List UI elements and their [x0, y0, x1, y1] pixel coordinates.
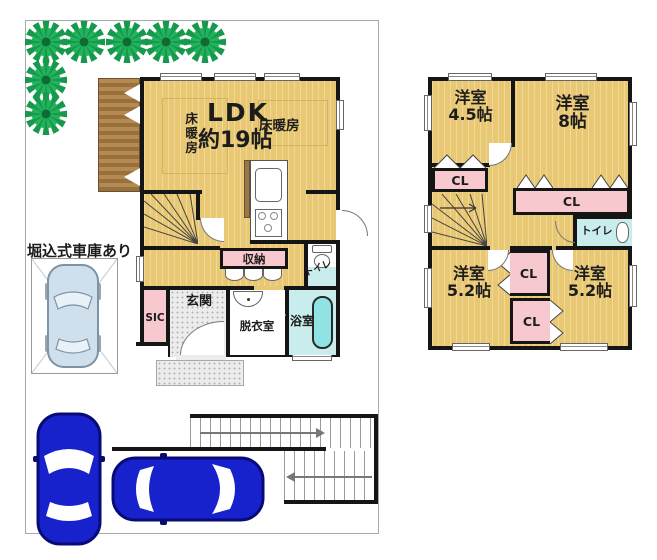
washbasin-faucet [247, 298, 250, 301]
bedroom-52r-label: 洋室 5.2帖 [548, 266, 632, 300]
closet-mid: CL [510, 250, 550, 296]
room-size: 4.5帖 [448, 105, 492, 124]
closet-label: CL [520, 266, 537, 281]
deck-notch [124, 106, 140, 124]
room-size: 5.2帖 [568, 281, 612, 300]
bathtub [312, 296, 333, 349]
bifold-door [550, 300, 564, 344]
kitchen-sink [255, 168, 282, 202]
ramp-arrow-left [294, 476, 372, 478]
building-notch [136, 342, 168, 361]
window [448, 73, 492, 81]
bathroom-label: 浴室 [290, 315, 314, 328]
window [424, 205, 432, 233]
entrance-porch [156, 360, 244, 386]
ramp-edge-bottom [284, 500, 378, 504]
tree-icon [105, 20, 149, 64]
room-size: 8帖 [558, 112, 587, 132]
bifold-door [517, 174, 553, 188]
window [560, 343, 608, 351]
floor-heating-label-left: 床暖房 [184, 112, 197, 156]
wall [306, 190, 340, 194]
tree-icon [144, 20, 188, 64]
toilet-tank [312, 245, 332, 253]
closet-tl: CL [432, 168, 488, 192]
staircase-2f [432, 194, 487, 246]
entrance-label: 玄関 [176, 295, 222, 309]
parked-car-lightblue [44, 263, 102, 369]
bifold-door [592, 174, 628, 188]
window [336, 100, 344, 130]
stove-burner [258, 212, 266, 220]
closet-label: CL [563, 194, 580, 209]
storage-label: 収納 [243, 251, 266, 267]
closet-label: CL [451, 173, 468, 188]
ramp-arrow-left-head [286, 472, 295, 482]
stove-burner [270, 212, 278, 220]
room-size: 5.2帖 [447, 281, 491, 300]
closet-label: CL [523, 314, 540, 329]
bedroom-8-label: 洋室 8帖 [515, 96, 630, 132]
tree-icon [183, 20, 227, 64]
ramp-arrow-right-head [316, 428, 325, 438]
closet-top-wide: CL [513, 188, 630, 215]
window [136, 256, 144, 282]
window [264, 73, 300, 81]
window [629, 102, 637, 146]
storage-closet: 収納 [220, 248, 288, 269]
window [545, 73, 597, 81]
wall [196, 190, 200, 220]
sic-label: SIC [142, 313, 168, 324]
floor-heating-label-right: 床暖房 [259, 119, 300, 133]
closet-curtain [225, 269, 244, 281]
tree-icon [62, 20, 106, 64]
toilet-bowl [616, 222, 629, 243]
floorplan-canvas: 堀込式車庫あり 床暖房 [0, 0, 657, 560]
stove-burner [264, 224, 272, 232]
door-swing-bath [276, 308, 286, 322]
ramp-edge-right [374, 414, 378, 504]
wall [140, 246, 220, 250]
ramp-arrow-right [200, 432, 316, 434]
wall [428, 246, 490, 250]
deck-notch [124, 84, 140, 102]
staircase-1f [144, 194, 198, 244]
closet-curtain [263, 269, 282, 281]
wall [304, 240, 308, 288]
parked-car-blue-vertical [32, 410, 106, 548]
closet-bottom: CL [510, 298, 550, 344]
parked-car-blue-horizontal [108, 452, 268, 526]
window [160, 73, 202, 81]
toilet-2f-label: トイレ [581, 226, 613, 237]
bedroom-45-label: 洋室 4.5帖 [428, 90, 513, 124]
bifold-door [434, 154, 486, 168]
window [214, 73, 256, 81]
closet-curtain [244, 269, 263, 281]
deck-notch [124, 168, 140, 186]
window [452, 343, 490, 351]
tree-icon [24, 92, 68, 136]
